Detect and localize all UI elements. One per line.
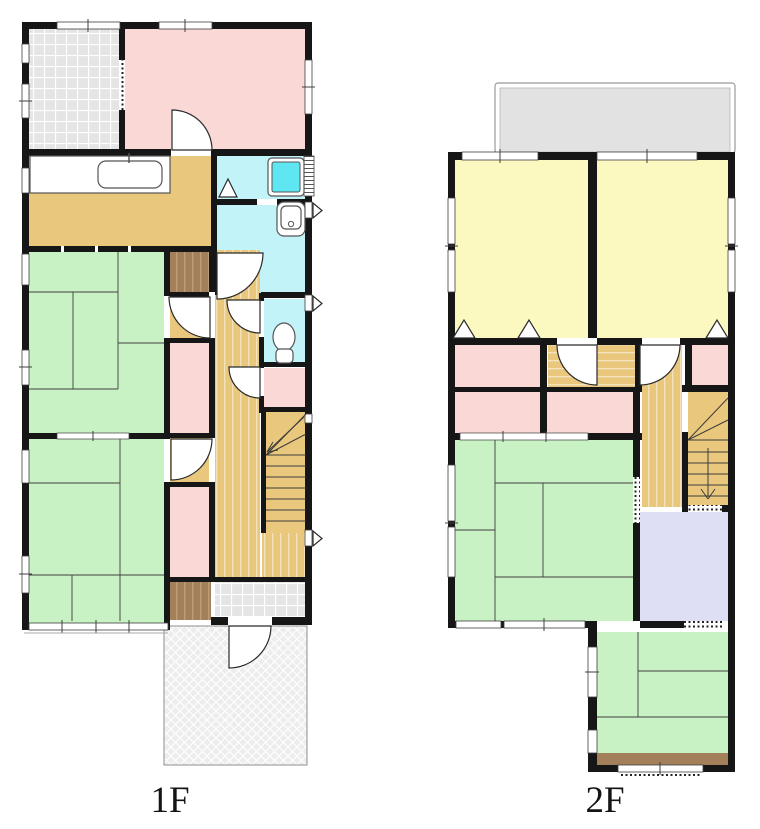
engawa-strip (597, 753, 728, 765)
casement-window-icon (313, 203, 322, 218)
staircase-1f (266, 412, 306, 533)
window-icon (728, 198, 735, 244)
room-tatami-1 (29, 251, 165, 434)
room-tatami-2f (455, 440, 633, 621)
room-living (125, 29, 305, 150)
casement-window-icon (313, 531, 322, 546)
balcony (495, 83, 735, 153)
window-icon (29, 623, 168, 630)
room-tatami-2f-south (597, 632, 728, 753)
window-icon (456, 621, 501, 628)
floor-1f (19, 19, 322, 765)
closet-pink-c (264, 368, 306, 408)
closet-2f-c (455, 392, 540, 433)
closet-lower (169, 582, 211, 620)
window-icon (728, 250, 735, 292)
window-icon (22, 254, 29, 285)
window-icon (448, 527, 455, 577)
window-icon (22, 44, 29, 63)
casement-window-icon (313, 296, 322, 311)
closet-2f-a (455, 343, 540, 387)
floor-2f (445, 83, 738, 776)
floor-2f-label: 2F (585, 780, 624, 821)
room-tiled-storage (29, 29, 121, 150)
closet-2f-b (692, 343, 728, 387)
room-tatami-2 (29, 438, 165, 623)
closet-upper (169, 251, 211, 293)
toilet-icon (273, 323, 295, 351)
room-bedroom-west (455, 160, 588, 339)
room-bedroom-east (597, 160, 728, 339)
louver-vent-icon (304, 156, 314, 196)
window-icon (22, 168, 29, 193)
window-icon (588, 730, 597, 753)
entrance-hall (215, 582, 305, 618)
window-icon (305, 414, 312, 423)
floor-plan-drawing: 1F 2F (0, 0, 760, 829)
closet-pink-b (169, 487, 211, 578)
closet-2f-d (547, 392, 637, 433)
closet-pink-a (169, 343, 211, 434)
window-icon (448, 250, 455, 292)
floor-1f-label: 1F (150, 780, 189, 821)
window-icon (448, 198, 455, 244)
window-icon (448, 465, 455, 521)
floor-plan-page: 1F 2F (0, 0, 760, 829)
room-storage-lavender (640, 512, 728, 621)
hallway-south (262, 533, 306, 578)
window-icon (22, 450, 29, 483)
kitchen-sink-icon (98, 161, 162, 188)
